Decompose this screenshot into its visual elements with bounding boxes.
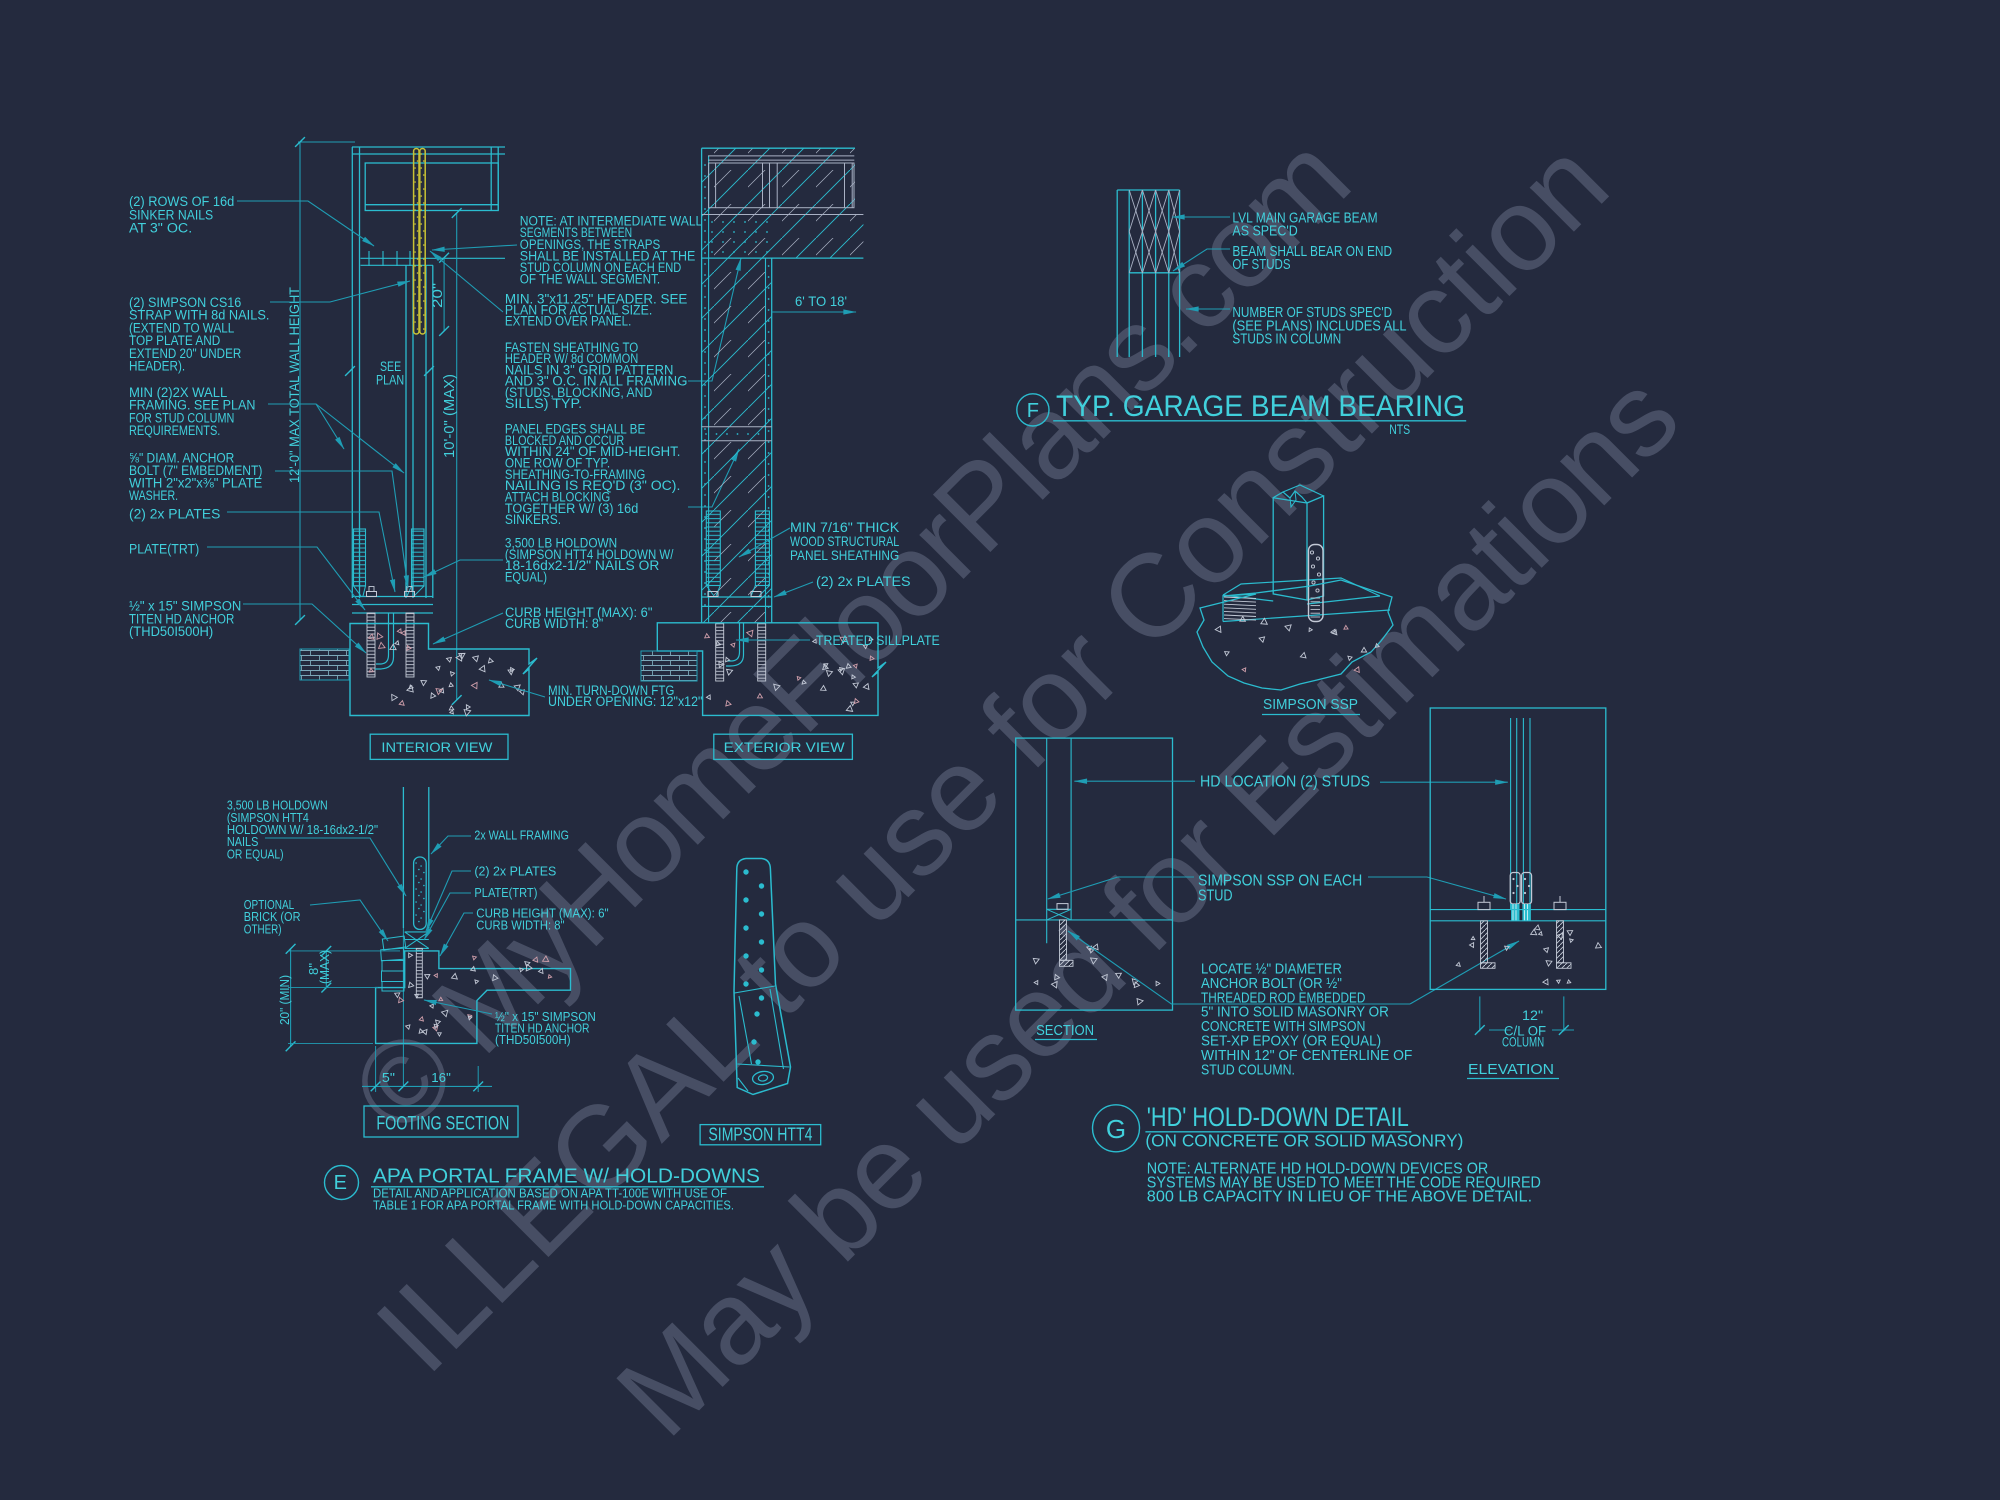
svg-text:COLUMN: COLUMN bbox=[1502, 1035, 1544, 1050]
svg-text:SECTION: SECTION bbox=[1036, 1022, 1094, 1039]
svg-text:FOOTING SECTION: FOOTING SECTION bbox=[376, 1114, 509, 1135]
svg-text:ELEVATION: ELEVATION bbox=[1468, 1061, 1554, 1078]
svg-text:PLATE(TRT): PLATE(TRT) bbox=[474, 886, 537, 900]
svg-text:OTHER): OTHER) bbox=[244, 922, 282, 936]
svg-text:OR EQUAL): OR EQUAL) bbox=[227, 847, 284, 861]
svg-text:HEADER).: HEADER). bbox=[129, 359, 185, 374]
svg-text:(THD50I500H): (THD50I500H) bbox=[495, 1033, 571, 1047]
svg-text:EXTERIOR VIEW: EXTERIOR VIEW bbox=[724, 739, 846, 755]
svg-text:2x WALL FRAMING: 2x WALL FRAMING bbox=[474, 829, 569, 843]
svg-text:G: G bbox=[1106, 1114, 1126, 1144]
svg-text:EXTEND OVER PANEL.: EXTEND OVER PANEL. bbox=[505, 313, 631, 328]
svg-text:TYP. GARAGE BEAM BEARING: TYP. GARAGE BEAM BEARING bbox=[1056, 390, 1465, 423]
svg-text:(2) 2x PLATES: (2) 2x PLATES bbox=[816, 573, 911, 589]
svg-text:AS SPEC'D: AS SPEC'D bbox=[1232, 223, 1297, 240]
svg-text:10'-0" (MAX): 10'-0" (MAX) bbox=[441, 374, 458, 458]
svg-text:(THD50I500H): (THD50I500H) bbox=[129, 624, 213, 639]
svg-text:CURB WIDTH: 8": CURB WIDTH: 8" bbox=[505, 616, 603, 631]
svg-text:UNDER OPENING: 12"x12": UNDER OPENING: 12"x12" bbox=[548, 694, 703, 709]
svg-text:800 LB CAPACITY IN LIEU OF THE: 800 LB CAPACITY IN LIEU OF THE ABOVE DET… bbox=[1147, 1189, 1532, 1206]
svg-text:E: E bbox=[334, 1172, 347, 1194]
svg-text:F: F bbox=[1027, 400, 1039, 422]
svg-text:OF STUDS: OF STUDS bbox=[1232, 256, 1290, 273]
svg-text:WASHER.: WASHER. bbox=[129, 488, 178, 503]
svg-text:AT 3" OC.: AT 3" OC. bbox=[129, 221, 192, 236]
svg-text:(2) 2x PLATES: (2) 2x PLATES bbox=[474, 864, 556, 878]
svg-text:TABLE 1 FOR APA PORTAL FRAME W: TABLE 1 FOR APA PORTAL FRAME WITH HOLD-D… bbox=[373, 1197, 734, 1212]
svg-text:EQUAL): EQUAL) bbox=[505, 569, 547, 584]
svg-text:NTS: NTS bbox=[1389, 421, 1410, 437]
svg-text:16": 16" bbox=[431, 1071, 451, 1085]
svg-text:SIMPSON SSP: SIMPSON SSP bbox=[1263, 696, 1358, 713]
svg-text:SIMPSON HTT4: SIMPSON HTT4 bbox=[708, 1125, 812, 1145]
svg-text:'HD' HOLD-DOWN DETAIL: 'HD' HOLD-DOWN DETAIL bbox=[1147, 1102, 1409, 1132]
svg-text:12": 12" bbox=[1522, 1008, 1543, 1023]
svg-text:PLATE(TRT): PLATE(TRT) bbox=[129, 541, 199, 556]
svg-text:SINKERS.: SINKERS. bbox=[505, 512, 561, 527]
svg-text:12'-0" MAX TOTAL WALL HEIGHT: 12'-0" MAX TOTAL WALL HEIGHT bbox=[286, 287, 302, 483]
svg-text:HD LOCATION (2) STUDS: HD LOCATION (2) STUDS bbox=[1200, 774, 1370, 791]
svg-text:STUDS IN COLUMN: STUDS IN COLUMN bbox=[1232, 331, 1341, 348]
svg-text:APA PORTAL FRAME W/ HOLD-DOWNS: APA PORTAL FRAME W/ HOLD-DOWNS bbox=[373, 1166, 760, 1188]
svg-text:REQUIREMENTS.: REQUIREMENTS. bbox=[129, 423, 220, 438]
svg-text:6' TO 18': 6' TO 18' bbox=[795, 293, 847, 309]
svg-text:CURB WIDTH: 8": CURB WIDTH: 8" bbox=[476, 919, 564, 933]
svg-text:20" (MIN): 20" (MIN) bbox=[278, 975, 292, 1025]
svg-text:OF THE WALL SEGMENT.: OF THE WALL SEGMENT. bbox=[520, 272, 660, 287]
svg-text:5": 5" bbox=[382, 1071, 395, 1085]
svg-text:INTERIOR VIEW: INTERIOR VIEW bbox=[381, 739, 493, 755]
svg-text:20": 20" bbox=[429, 283, 445, 308]
svg-text:(MAX): (MAX) bbox=[318, 950, 332, 984]
svg-text:(2) 2x PLATES: (2) 2x PLATES bbox=[129, 506, 220, 521]
svg-text:SILLS) TYP.: SILLS) TYP. bbox=[505, 396, 582, 411]
svg-text:PANEL SHEATHING: PANEL SHEATHING bbox=[790, 547, 899, 563]
svg-text:(ON CONCRETE OR SOLID MASONRY): (ON CONCRETE OR SOLID MASONRY) bbox=[1145, 1131, 1463, 1151]
svg-text:STUD COLUMN.: STUD COLUMN. bbox=[1201, 1062, 1295, 1078]
svg-text:STUD: STUD bbox=[1198, 887, 1233, 904]
svg-text:TREATED SILLPLATE: TREATED SILLPLATE bbox=[816, 632, 940, 648]
svg-text:PLAN: PLAN bbox=[376, 373, 404, 388]
